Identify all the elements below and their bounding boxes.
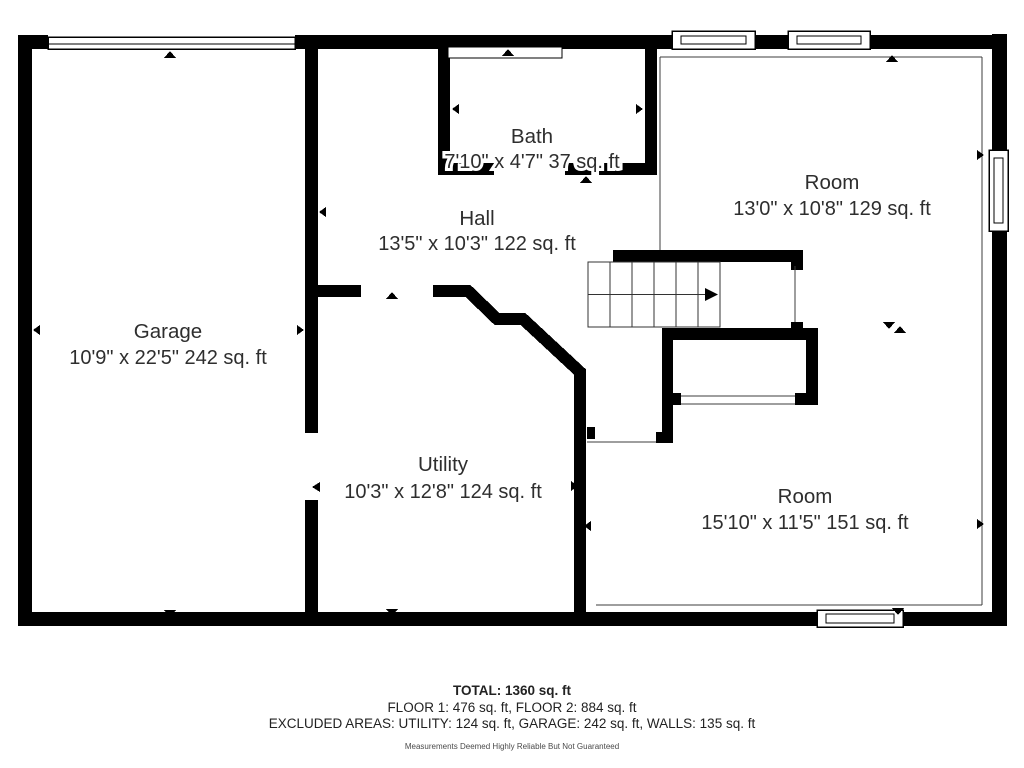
wall-stairs-top-nub [791, 262, 803, 270]
wall-closet-right-nub [795, 393, 806, 405]
wall-garage-divider-lower [305, 500, 318, 612]
room-label-room1: Room [805, 171, 860, 194]
marker-hall-left-icon [319, 207, 326, 217]
wall-left-exterior [18, 35, 32, 625]
room-dims-room1: 13'0" x 10'8" 129 sq. ft [733, 198, 931, 220]
floorplan-drawing: Garage 10'9" x 22'5" 242 sq. ft Bath 7'1… [0, 0, 1024, 768]
marker-utility-door-left-icon [312, 482, 320, 492]
wall-closet-left-nub [673, 393, 681, 405]
window-bottom [817, 610, 903, 627]
room-label-bath: Bath [511, 125, 553, 148]
room-label-hall: Hall [459, 207, 494, 230]
marker-bath-left-icon [452, 104, 459, 114]
marker-room1-top-icon [886, 55, 898, 62]
room-dims-bath: 7'10" x 4'7" 37 sq. ft [444, 151, 620, 173]
room-dims-utility: 10'3" x 12'8" 124 sq. ft [344, 481, 542, 503]
summary-block: TOTAL: 1360 sq. ft FLOOR 1: 476 sq. ft, … [0, 683, 1024, 751]
summary-floors: FLOOR 1: 476 sq. ft, FLOOR 2: 884 sq. ft [0, 700, 1024, 717]
room-label-garage: Garage [134, 320, 202, 343]
wall-garage-divider-upper [305, 49, 318, 433]
marker-garage-left-icon [33, 325, 40, 335]
wall-closet-left-foot [656, 432, 673, 443]
wall-top-main [332, 35, 992, 49]
marker-room2-right-icon [977, 519, 984, 529]
room-label-room2: Room [778, 485, 833, 508]
marker-room1-right-icon [977, 150, 984, 160]
window-top-right [788, 31, 870, 49]
room-dims-room2: 15'10" x 11'5" 151 sq. ft [701, 512, 909, 534]
marker-garage-top-icon [164, 51, 176, 58]
summary-total: TOTAL: 1360 sq. ft [0, 683, 1024, 700]
summary-disclaimer: Measurements Deemed Highly Reliable But … [0, 742, 1024, 751]
marker-garage-right-icon [297, 325, 304, 335]
marker-room1-mid-a-icon [883, 322, 895, 329]
summary-excluded: EXCLUDED AREAS: UTILITY: 124 sq. ft, GAR… [0, 716, 1024, 733]
marker-bath-right-icon [636, 104, 643, 114]
wall-closet-left [662, 340, 673, 432]
marker-room1-mid-b-icon [894, 326, 906, 333]
window-right [989, 150, 1008, 231]
stairs [588, 262, 720, 327]
room-dims-garage: 10'9" x 22'5" 242 sq. ft [69, 347, 267, 369]
marker-utility-door-top-icon [386, 292, 398, 299]
floorplan-page: Garage 10'9" x 22'5" 242 sq. ft Bath 7'1… [0, 0, 1024, 768]
wall-bath-right [645, 48, 657, 175]
wall-right-exterior [992, 34, 1007, 626]
wall-stairs-top [613, 250, 803, 262]
wall-closet-right [806, 340, 818, 405]
wall-landing-bottom-nub [791, 322, 803, 328]
wall-hall-utility-left-seg [317, 285, 361, 297]
marker-bath-bottom-icon [580, 176, 592, 183]
room-dims-hall: 13'5" x 10'3" 122 sq. ft [378, 233, 576, 255]
wall-closet-top [662, 328, 818, 340]
wall-utility-right-nub [587, 427, 595, 439]
wall-top-garage-cap-right [295, 35, 332, 49]
garage-door [48, 37, 295, 49]
window-top-left [672, 31, 755, 49]
room-label-utility: Utility [418, 453, 469, 476]
